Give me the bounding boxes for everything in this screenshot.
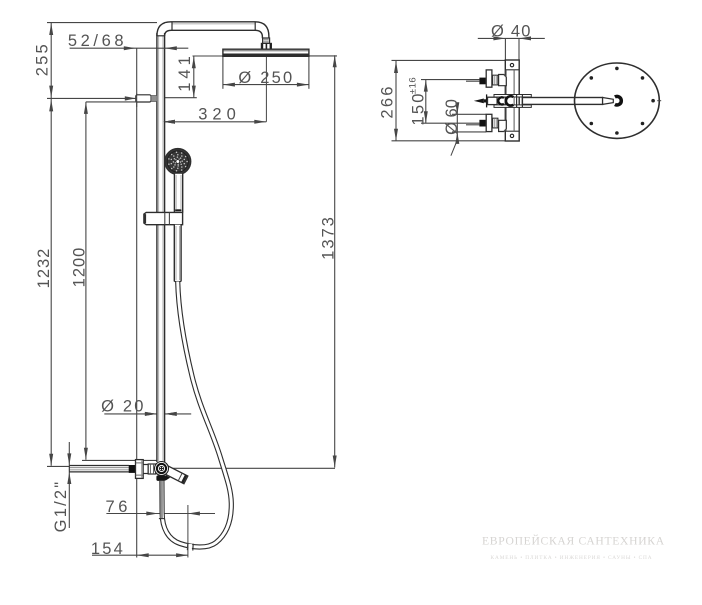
- svg-text:255: 255: [34, 42, 52, 76]
- svg-text:1200: 1200: [71, 247, 89, 288]
- svg-text:266: 266: [379, 84, 397, 118]
- svg-text:Ø 40: Ø 40: [491, 23, 532, 41]
- svg-text:320: 320: [198, 105, 241, 123]
- svg-text:1373: 1373: [319, 215, 337, 260]
- svg-text:Ø 60: Ø 60: [443, 99, 461, 135]
- svg-text:150: 150: [410, 91, 428, 125]
- svg-text:G1/2": G1/2": [52, 480, 70, 533]
- svg-text:КАМЕНЬ • ПЛИТКА • ИНЖЕНЕРИЯ •: КАМЕНЬ • ПЛИТКА • ИНЖЕНЕРИЯ • САУНЫ • СП…: [491, 555, 653, 561]
- svg-text:±16: ±16: [408, 77, 419, 94]
- svg-text:52/68: 52/68: [68, 32, 127, 50]
- svg-text:Ø 20: Ø 20: [101, 398, 146, 416]
- svg-text:Ø 250: Ø 250: [238, 69, 294, 87]
- svg-text:1232: 1232: [35, 248, 53, 289]
- svg-text:154: 154: [91, 540, 125, 558]
- svg-text:76: 76: [106, 498, 131, 516]
- svg-text:141: 141: [176, 52, 194, 92]
- svg-text:ЕВРОПЕЙСКАЯ САНТЕХНИКА: ЕВРОПЕЙСКАЯ САНТЕХНИКА: [482, 534, 665, 548]
